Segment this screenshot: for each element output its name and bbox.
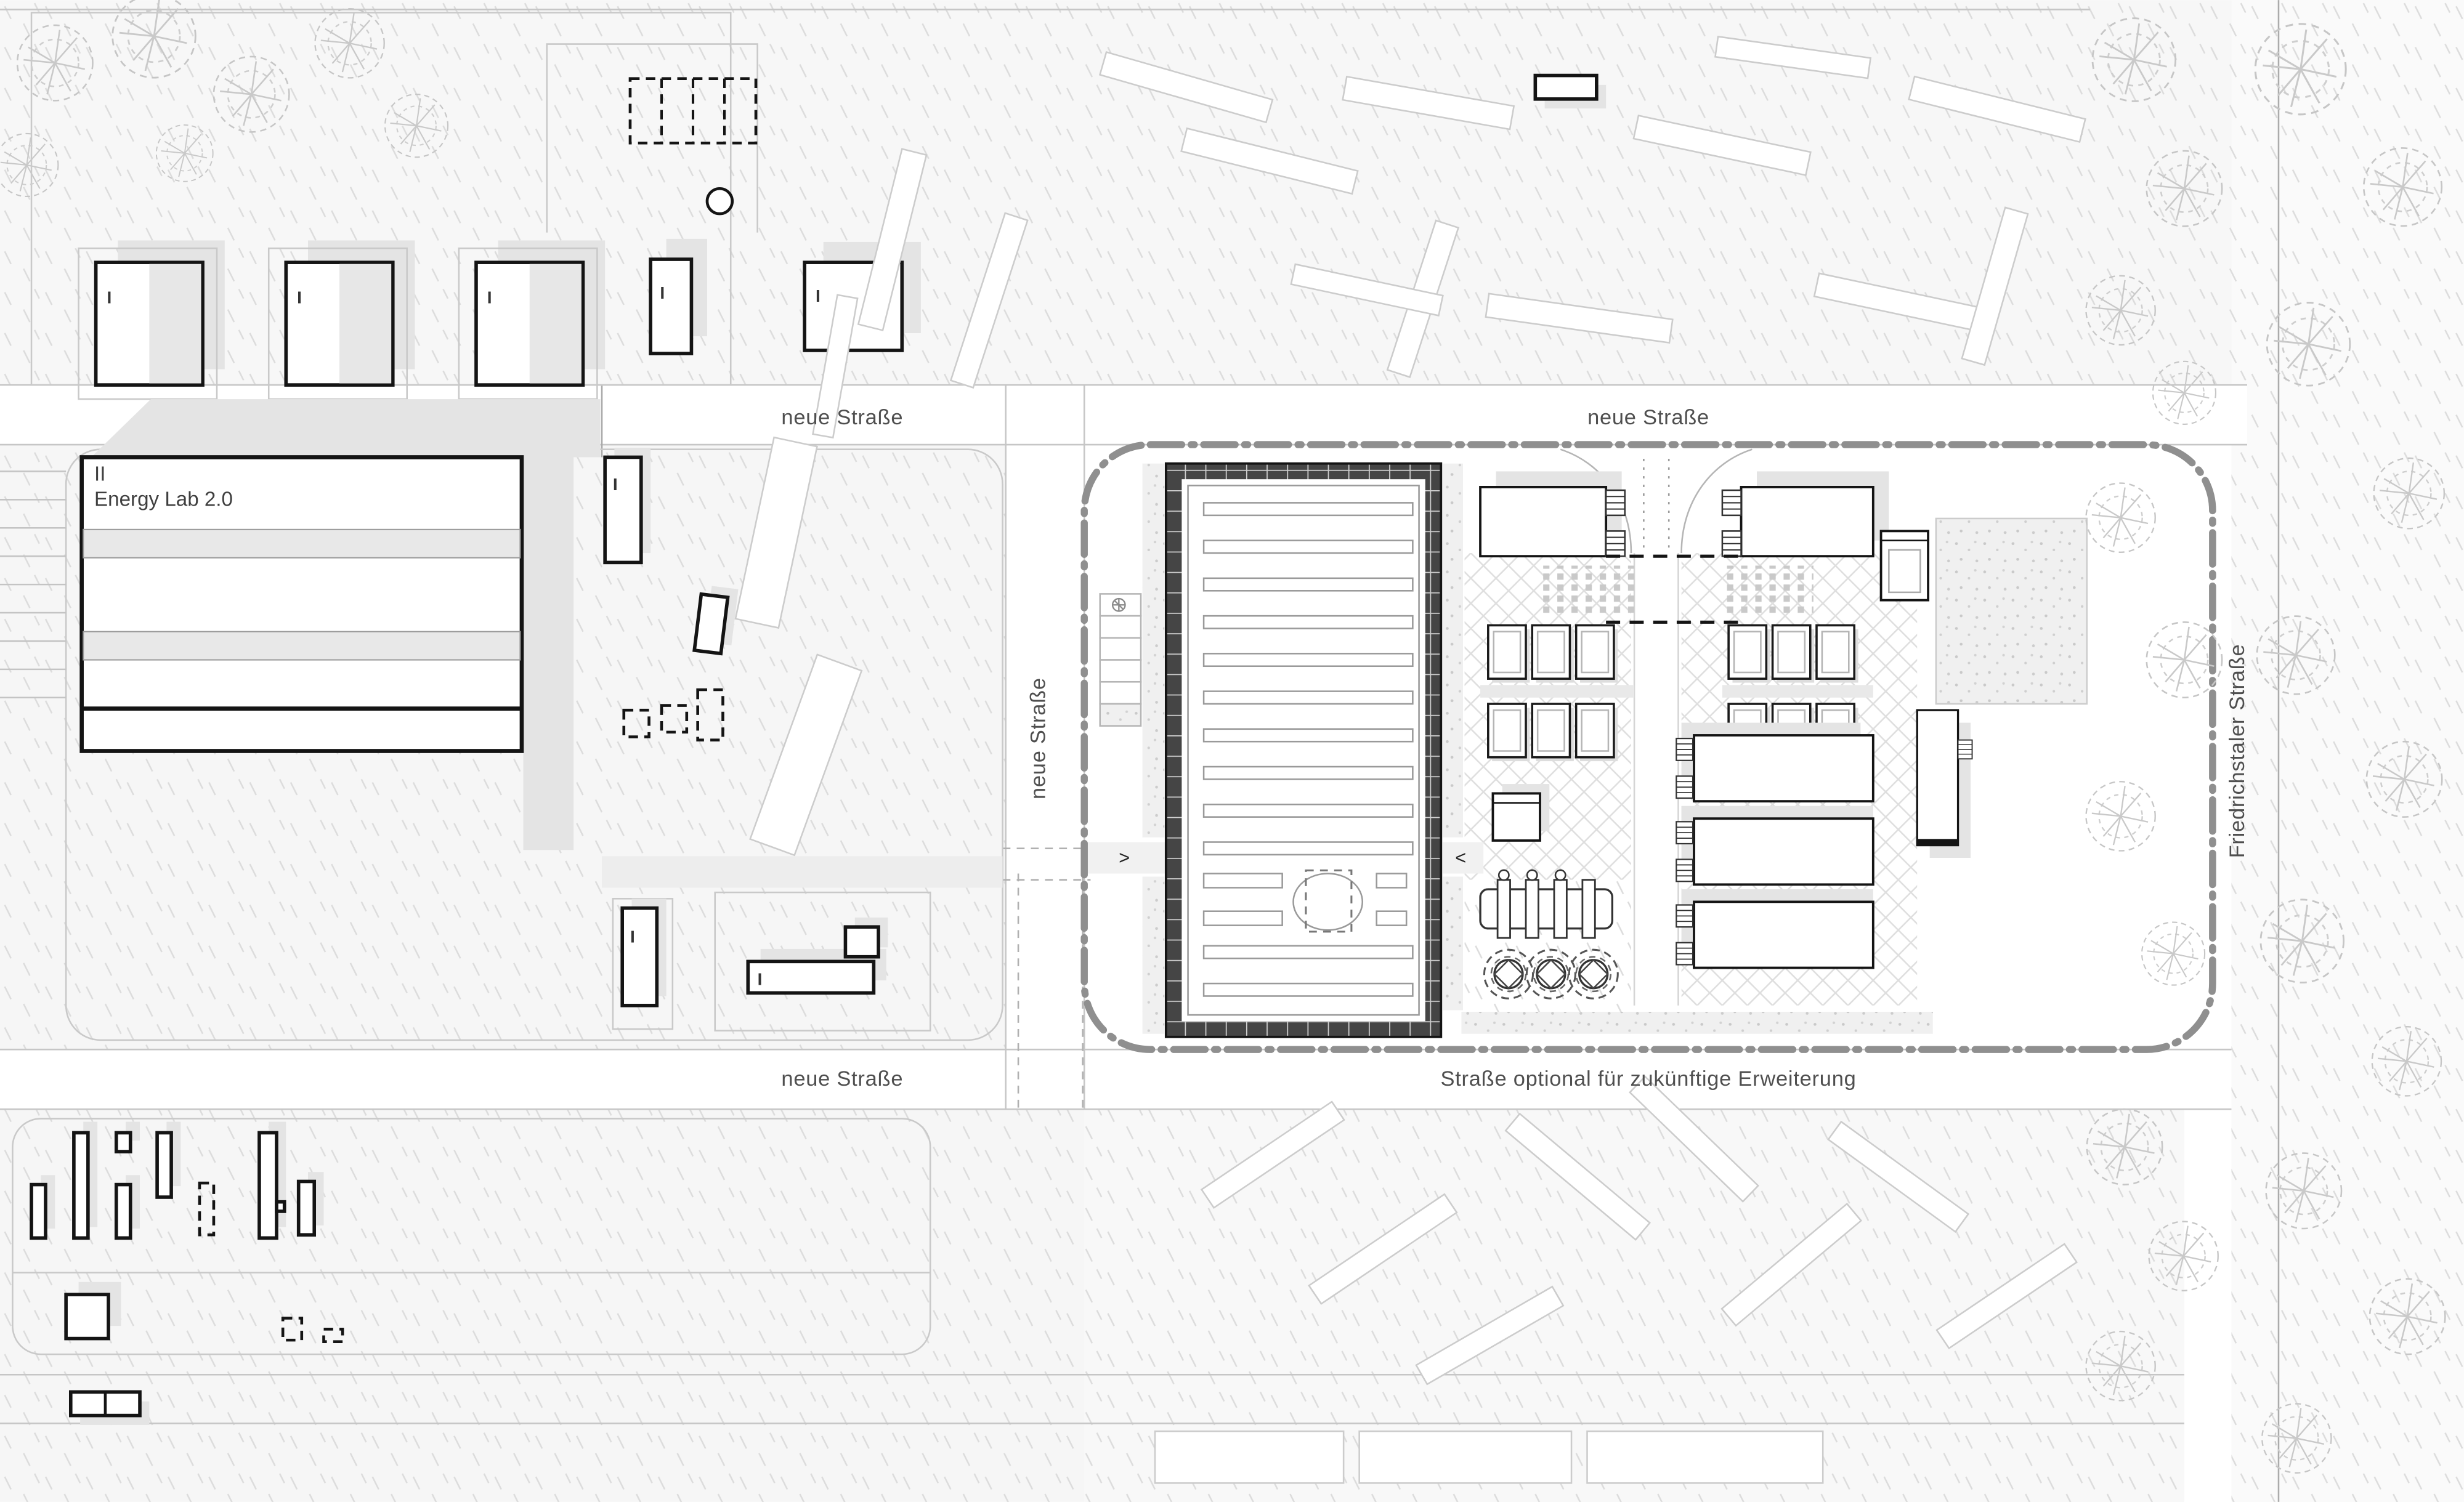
utility-building: [1493, 784, 1549, 841]
storey-label: I: [630, 927, 635, 947]
site-plan-svg: I I I I I: [0, 0, 2464, 1502]
panel-modules-west: [1480, 625, 1634, 761]
plant-icon: [1112, 599, 1125, 611]
entry-arrow-west: >: [1119, 847, 1130, 868]
stair-icon: [1958, 740, 1972, 759]
site-plan-page: I I I I I: [0, 0, 2464, 1502]
stair-icon: [1722, 490, 1741, 515]
storey-label: I: [107, 288, 111, 307]
stair-icon: [1676, 776, 1693, 798]
energy-lab-name: Energy Lab 2.0: [94, 488, 233, 511]
stair-icon: [1676, 860, 1693, 882]
house-1: I: [96, 262, 203, 385]
storey-label: I: [660, 283, 665, 302]
storey-label: I: [816, 286, 821, 305]
silo-circle: [707, 188, 732, 214]
label-neue-strasse-vertical: neue Straße: [1026, 677, 1050, 799]
storey-label: I: [613, 475, 618, 494]
storey-label: I: [297, 288, 302, 307]
stair-icon: [1606, 490, 1625, 515]
label-neue-strasse-bottom: neue Straße: [781, 1067, 903, 1091]
label-neue-strasse-top-left: neue Straße: [781, 406, 903, 429]
stair-icon: [1676, 822, 1693, 844]
tall-building-east: [1917, 710, 1972, 858]
stair-icon: [1606, 531, 1625, 556]
stair-icon: [1676, 905, 1693, 927]
lab-annex-building: I: [605, 448, 650, 562]
parking-stalls: [1100, 594, 1141, 725]
label-strasse-optional: Straße optional für zukünftige Erweiteru…: [1440, 1067, 1856, 1091]
pv-rack-grid: [1543, 565, 1634, 616]
label-neue-strasse-top-right: neue Straße: [1587, 406, 1709, 429]
label-friedrichstaler-strasse: Friedrichstaler Straße: [2226, 644, 2249, 858]
compound-building-north-1: [1480, 471, 1625, 556]
energy-lab-building: II Energy Lab 2.0: [82, 457, 522, 751]
stair-icon: [1676, 943, 1693, 965]
main-hall: [1166, 464, 1441, 1037]
house-4: I: [650, 259, 691, 353]
entry-arrow-east: <: [1455, 847, 1466, 868]
pv-rack-grid: [1725, 565, 1814, 616]
house-2: I: [286, 262, 392, 385]
storey-label: I: [487, 288, 492, 307]
compound-halls-east: [1676, 723, 1873, 968]
bottom-strip: [71, 1392, 150, 1425]
house-3: I: [476, 262, 583, 385]
pavilion: [1881, 531, 1929, 600]
top-shed: [1535, 76, 1606, 109]
storey-label: I: [758, 970, 763, 989]
energy-lab-storeys: II: [94, 463, 105, 486]
stair-icon: [1676, 738, 1693, 761]
stair-icon: [1722, 531, 1741, 556]
